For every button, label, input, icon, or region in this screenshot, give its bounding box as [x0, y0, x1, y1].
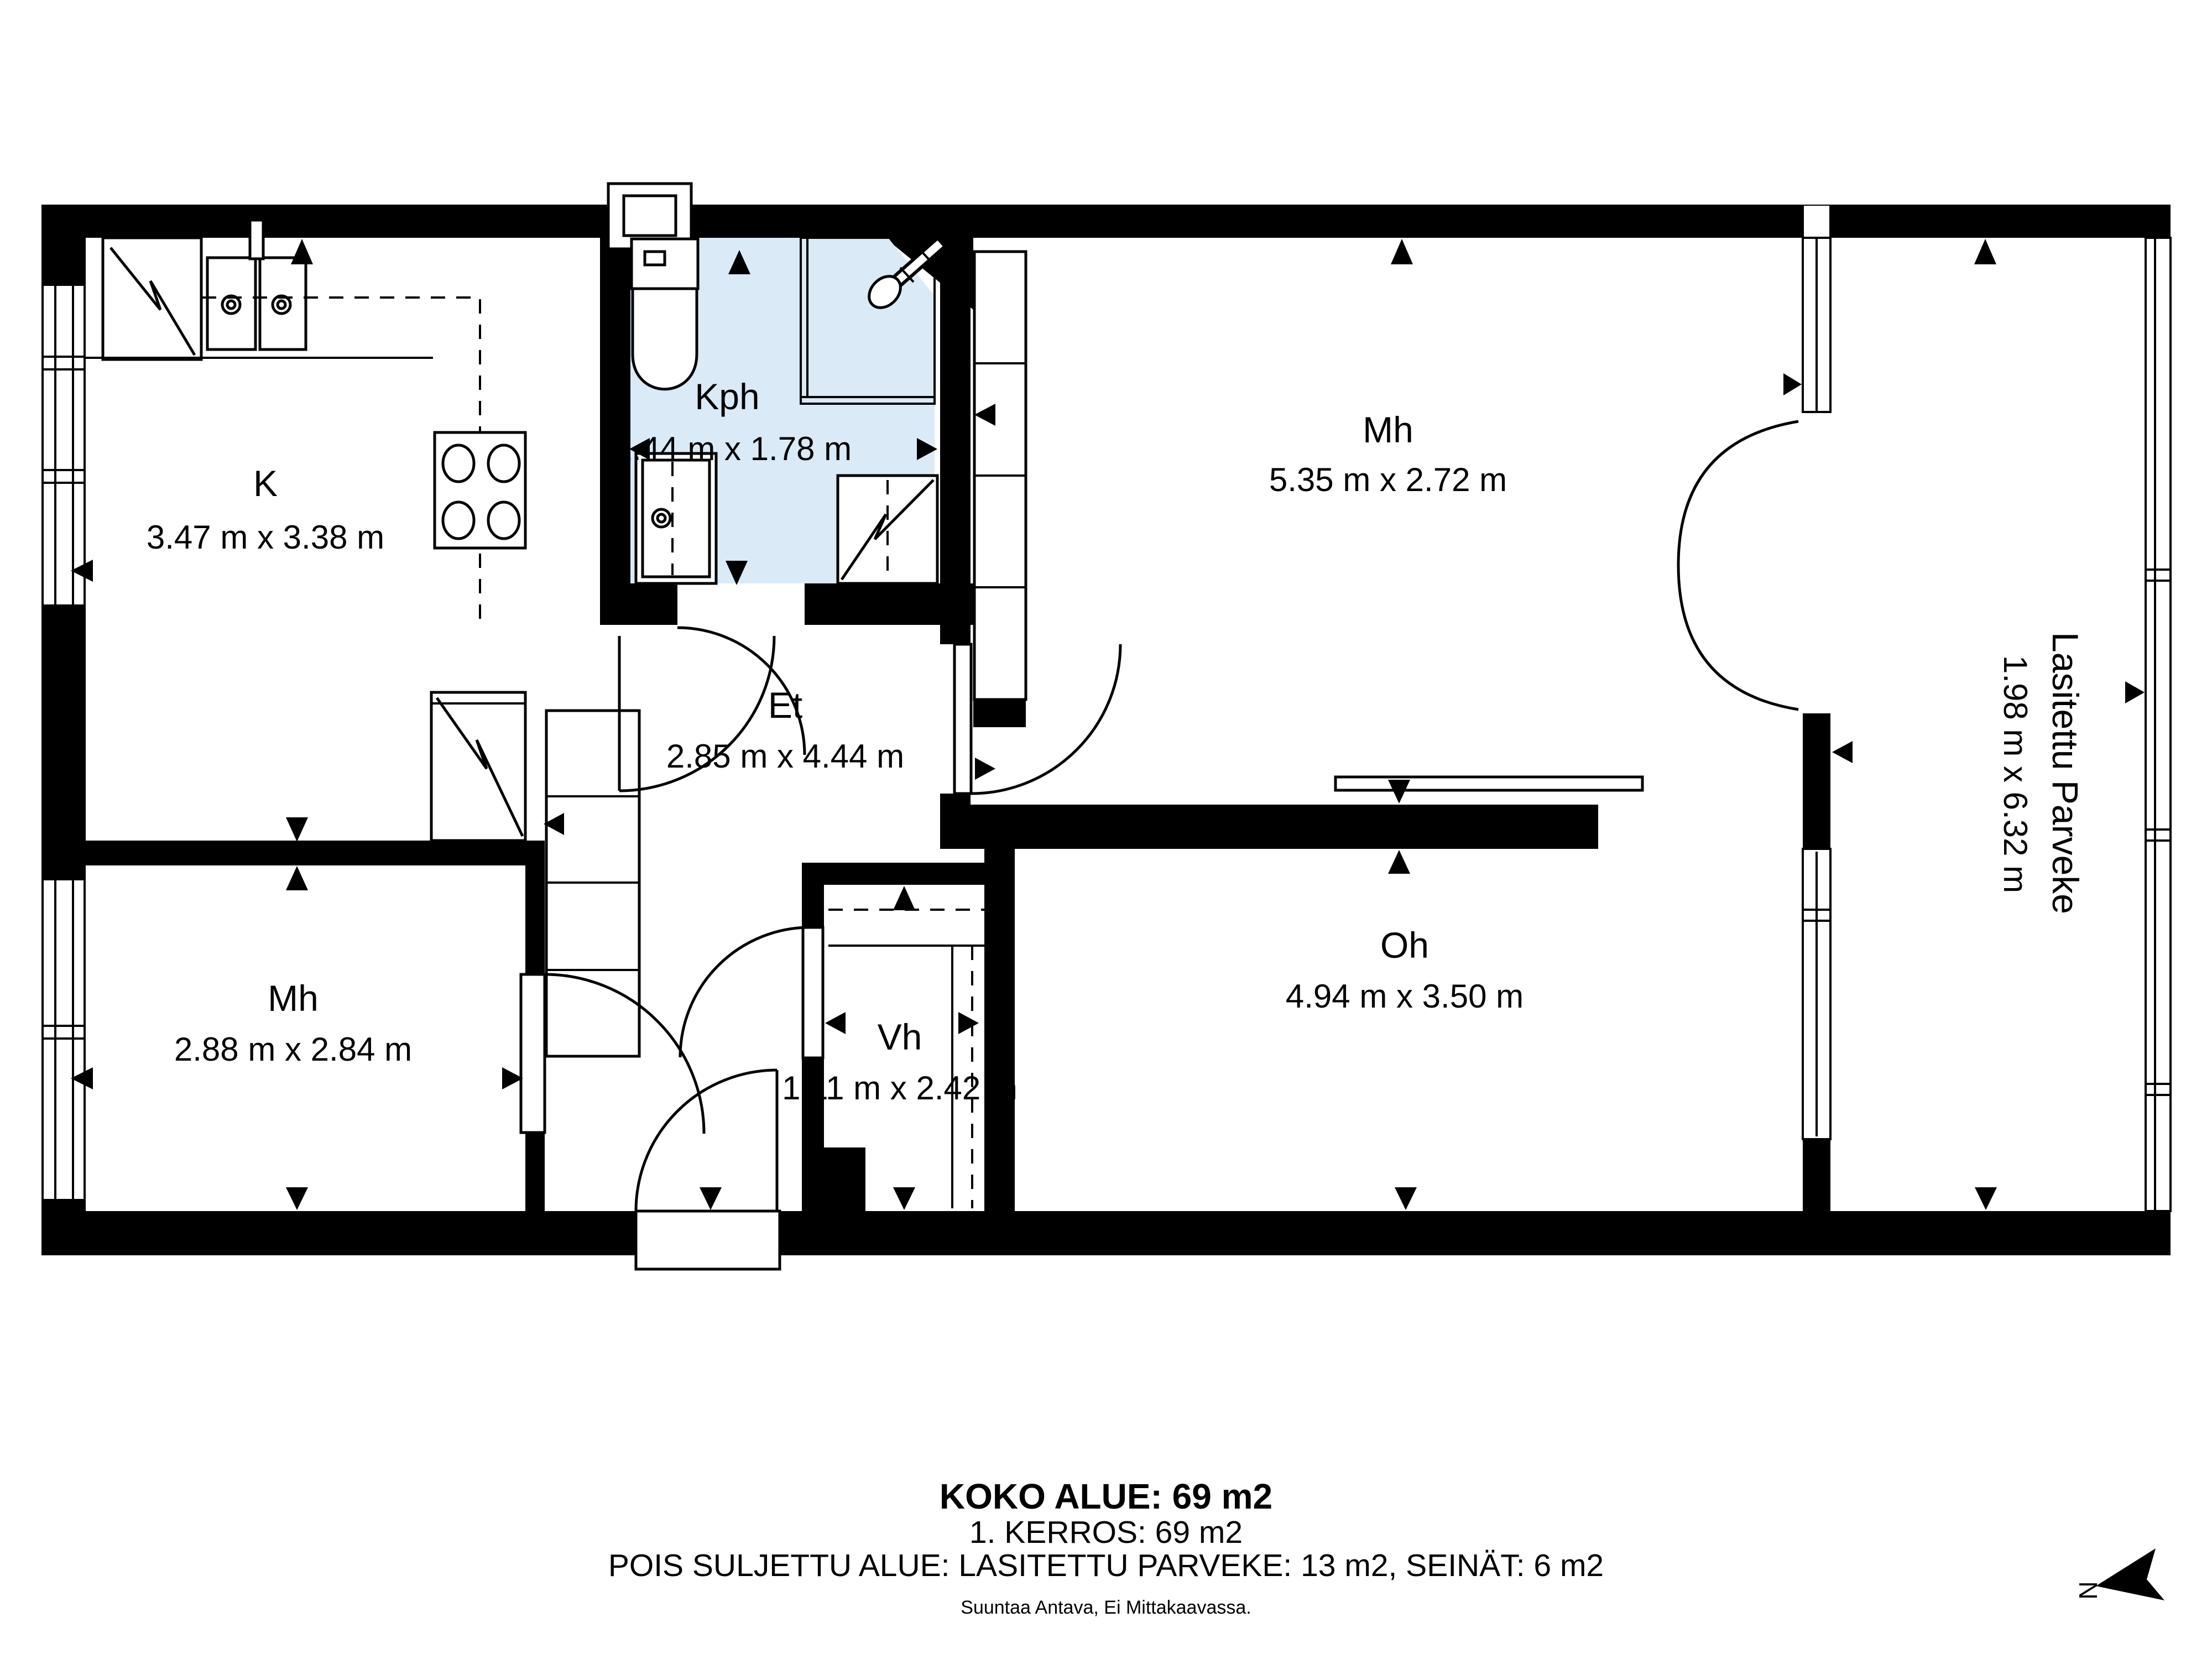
- floor-plan-canvas: K 3.47 m x 3.38 m Kph 2.44 m x 1.78 m Mh…: [0, 0, 2212, 1659]
- door-balcony-french: [1678, 421, 1798, 709]
- balcony-glazing-icon: [2146, 238, 2171, 1211]
- summary-block: KOKO ALUE: 69 m2 1. KERROS: 69 m2 POIS S…: [608, 1477, 1604, 1618]
- room-label-kitchen: K: [253, 463, 278, 504]
- door-bedroom-bottom: [521, 974, 704, 1134]
- room-dims-bedroom-top: 5.35 m x 2.72 m: [1269, 461, 1507, 498]
- summary-total-area: KOKO ALUE: 69 m2: [940, 1477, 1272, 1516]
- stairs-icon: [546, 711, 639, 1056]
- washing-machine-icon: [636, 453, 716, 583]
- summary-disclaimer: Suuntaa Antava, Ei Mittakaavassa.: [961, 1597, 1251, 1618]
- stove-icon: [435, 432, 525, 548]
- room-label-balcony: Lasitettu Parveke 1.98 m x 6.32 m: [1997, 632, 2086, 916]
- summary-excluded: POIS SULJETTU ALUE: LASITETTU PARVEKE: 1…: [608, 1548, 1604, 1583]
- north-arrow-icon: N: [2074, 1548, 2164, 1600]
- room-dims-bathroom: 2.44 m x 1.78 m: [614, 430, 852, 467]
- balcony-dims: 1.98 m x 6.32 m: [1997, 655, 2034, 893]
- door-entrance: [636, 1070, 780, 1269]
- door-sliding: [1335, 777, 1642, 790]
- window-icon: [43, 879, 85, 1200]
- north-letter: N: [2074, 1581, 2103, 1599]
- window-icon: [1803, 238, 1830, 412]
- summary-floor: 1. KERROS: 69 m2: [969, 1515, 1243, 1550]
- room-label-hall: Et: [768, 685, 802, 726]
- balcony-name: Lasitettu Parveke: [2045, 632, 2086, 914]
- window-icon: [1803, 849, 1830, 1139]
- room-dims-kitchen: 3.47 m x 3.38 m: [147, 519, 384, 556]
- corner-cabinet-icon: [838, 476, 937, 583]
- floor-plan-page: K 3.47 m x 3.38 m Kph 2.44 m x 1.78 m Mh…: [0, 0, 2212, 1659]
- room-label-bedroom-bottom: Mh: [268, 978, 319, 1019]
- room-dims-bedroom-bottom: 2.88 m x 2.84 m: [174, 1031, 412, 1068]
- fridge-icon: [103, 238, 201, 359]
- wardrobe-icon: [431, 692, 525, 841]
- room-label-closet: Vh: [878, 1016, 922, 1057]
- toilet-icon: [632, 239, 698, 389]
- room-label-living: Oh: [1380, 925, 1429, 966]
- sink-icon: [207, 220, 306, 349]
- walls: [41, 205, 2171, 1255]
- shelf-column-icon: [973, 252, 1026, 727]
- door-closet: [680, 927, 823, 1058]
- room-label-bedroom-top: Mh: [1363, 409, 1413, 450]
- room-dims-living: 4.94 m x 3.50 m: [1286, 978, 1524, 1015]
- window-icon: [43, 285, 85, 606]
- room-label-bathroom: Kph: [695, 376, 759, 417]
- room-dims-closet: 1.11 m x 2.42 m: [782, 1070, 1018, 1107]
- room-dims-hall: 2.85 m x 4.44 m: [666, 738, 904, 775]
